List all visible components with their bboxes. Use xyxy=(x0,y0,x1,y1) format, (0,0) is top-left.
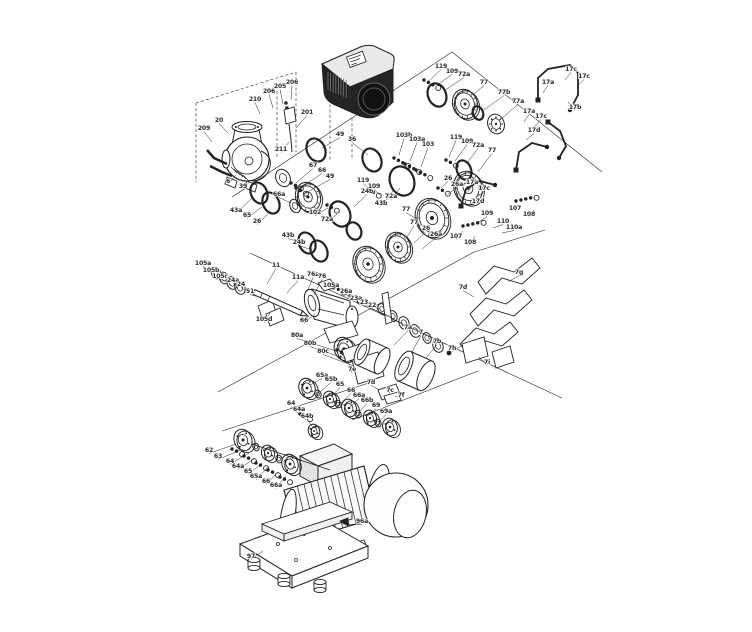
part-number-label: 65 xyxy=(336,381,344,388)
part-sensor-pipe xyxy=(514,143,550,173)
part-gear-disc xyxy=(381,229,416,267)
part-number-label: 26a xyxy=(451,181,463,188)
part-number-label: 66 xyxy=(318,167,326,174)
part-number-label: 109 xyxy=(481,210,493,217)
part-number-label: 7d xyxy=(367,379,375,386)
part-bolt-set xyxy=(461,220,486,227)
part-number-label: 69a xyxy=(380,408,392,415)
part-number-label: 105a xyxy=(195,260,211,267)
part-number-label: 66 xyxy=(300,317,308,324)
part-number-label: 64a xyxy=(232,463,244,470)
part-number-label: 108 xyxy=(464,239,476,246)
part-number-label: 66a xyxy=(273,191,285,198)
part-gear-disc xyxy=(448,86,483,124)
part-number-label: 64a xyxy=(293,406,305,413)
part-number-label: 206 xyxy=(286,79,298,86)
part-sensor-pipe xyxy=(546,120,567,161)
part-ring xyxy=(273,167,293,189)
part-sleeve xyxy=(391,348,439,393)
part-number-label: 17a xyxy=(523,108,535,115)
part-flange xyxy=(306,423,324,442)
part-number-label: 102 xyxy=(309,209,321,216)
part-number-label: 80a xyxy=(291,332,303,339)
part-number-label: 66a xyxy=(270,482,282,489)
part-plate xyxy=(284,107,296,124)
part-number-label: 69 xyxy=(372,402,380,409)
part-number-label: 211 xyxy=(275,146,287,153)
part-number-label: 7b xyxy=(433,338,442,345)
part-oring xyxy=(307,238,331,265)
part-number-label: 6 xyxy=(226,178,230,185)
part-oring xyxy=(303,135,329,164)
part-bolt-set xyxy=(254,461,268,470)
part-number-label: 205 xyxy=(274,83,286,90)
part-number-label: 24b xyxy=(293,239,306,246)
part-number-label: 17c xyxy=(565,66,577,73)
part-number-label: 17d xyxy=(528,127,540,134)
part-number-label: 77b xyxy=(498,89,511,96)
part-plate xyxy=(478,258,540,294)
part-plate xyxy=(492,346,514,368)
part-number-label: 62 xyxy=(205,447,213,454)
part-number-label: 107 xyxy=(450,233,462,240)
part-number-label: 76 xyxy=(318,273,326,280)
part-flange xyxy=(380,416,403,440)
part-bolt-set xyxy=(266,468,280,477)
part-bolt-set xyxy=(436,186,450,196)
part-number-label: 7 xyxy=(419,329,423,336)
part-number-label: 22 xyxy=(368,302,376,309)
part-number-label: 77 xyxy=(480,79,488,86)
part-number-label: 7a xyxy=(404,324,412,331)
part-number-label: 43b xyxy=(282,232,295,239)
part-number-label: 64b xyxy=(301,413,314,420)
part-number-label: 72a xyxy=(472,142,484,149)
part-number-label: 77a xyxy=(512,98,524,105)
part-disc xyxy=(485,112,507,136)
part-number-label: 17a xyxy=(542,79,554,86)
part-number-label: 24 xyxy=(237,281,246,288)
part-number-label: 105a xyxy=(323,282,339,289)
part-number-label: 65 xyxy=(243,212,251,219)
part-plate xyxy=(470,290,532,326)
part-number-label: 17a xyxy=(466,179,478,186)
part-number-label: 17c xyxy=(578,73,590,80)
part-number-label: 105d xyxy=(256,316,273,323)
part-number-label: 26 xyxy=(422,225,430,232)
part-number-label: 20 xyxy=(215,117,224,124)
part-number-label: 7c xyxy=(386,387,394,394)
part-number-label: 72a xyxy=(321,216,333,223)
part-number-label: 17b xyxy=(569,104,582,111)
part-number-label: 39 xyxy=(239,183,247,190)
part-number-label: 201 xyxy=(301,109,313,116)
part-bolt-set xyxy=(414,168,432,180)
part-control-box xyxy=(322,45,394,117)
part-number-label: 77 xyxy=(488,147,496,154)
part-number-label: 26a xyxy=(430,231,442,238)
part-oring xyxy=(326,198,354,230)
part-number-label: 66 xyxy=(262,478,270,485)
part-bolt-set xyxy=(230,447,244,456)
part-oring xyxy=(359,145,385,174)
part-number-label: 7h xyxy=(448,345,456,352)
part-number-label: 77 xyxy=(410,219,418,226)
part-number-label: 26a xyxy=(340,288,352,295)
part-number-label: 51 xyxy=(246,288,254,295)
part-gear-disc xyxy=(348,242,390,287)
part-number-label: 72a xyxy=(385,193,397,200)
part-number-label: 11 xyxy=(272,262,280,269)
part-number-label: 65a xyxy=(250,473,262,480)
part-number-label: 7e xyxy=(348,366,356,373)
part-number-label: 97 xyxy=(247,553,255,560)
part-number-label: 72a xyxy=(458,71,470,78)
part-number-label: 17c xyxy=(478,185,490,192)
part-number-label: 43b xyxy=(375,200,388,207)
part-number-label: 63 xyxy=(214,453,222,460)
part-number-label: 23 xyxy=(360,299,368,306)
part-number-label: 107 xyxy=(509,205,521,212)
part-number-label: 7i xyxy=(484,359,490,366)
part-number-label: 80c xyxy=(317,348,329,355)
part-bolt-set xyxy=(514,195,539,202)
part-number-label: 49 xyxy=(336,131,344,138)
part-number-label: 11a xyxy=(292,274,304,281)
diagram-page: 2102062052062012092021163943a652666a6766… xyxy=(0,0,752,632)
part-number-label: 109 xyxy=(446,68,458,75)
part-number-label: 210 xyxy=(249,96,262,103)
part-number-label: 49 xyxy=(326,173,334,180)
part-number-label: 110a xyxy=(506,224,522,231)
part-number-label: 103 xyxy=(422,141,434,148)
part-number-label: 77 xyxy=(402,206,410,213)
part-hose xyxy=(289,124,292,152)
part-number-label: 67 xyxy=(309,162,317,169)
part-number-label: 7g xyxy=(515,269,523,276)
part-number-label: 108 xyxy=(523,211,535,218)
part-number-label: 26 xyxy=(253,218,261,225)
part-number-label: 17c xyxy=(535,113,547,120)
part-number-label: 96a xyxy=(356,518,368,525)
part-number-label: 109 xyxy=(368,183,380,190)
part-number-label: 43a xyxy=(230,207,242,214)
part-oring xyxy=(344,220,364,242)
part-plate xyxy=(382,292,392,324)
part-number-label: 7d xyxy=(459,284,467,291)
part-number-label: 80b xyxy=(304,340,317,347)
part-number-label: 17d xyxy=(472,198,484,205)
part-number-label: 7f xyxy=(398,392,405,399)
part-number-label: 36 xyxy=(348,136,356,143)
part-number-label: 209 xyxy=(198,125,210,132)
exploded-view-diagram: 2102062052062012092021163943a652666a6766… xyxy=(0,0,752,632)
